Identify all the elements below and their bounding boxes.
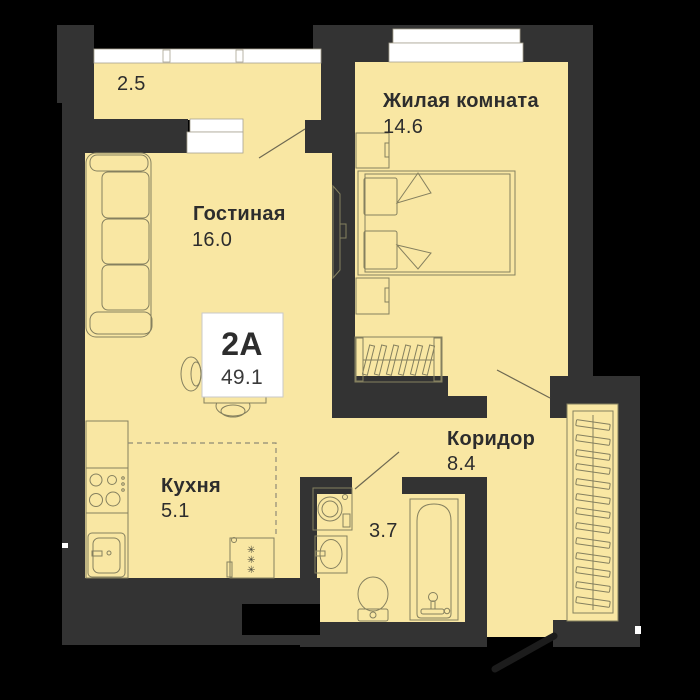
wall-bottom-notch bbox=[242, 604, 320, 635]
living-area-label: 16.0 bbox=[192, 229, 232, 251]
bedroom-name-label: Жилая комната bbox=[382, 90, 540, 112]
living-name-label: Гостиная bbox=[193, 203, 286, 225]
floor-plan-svg: ✳ ✳ ✳ 2А 49.1 bbox=[0, 0, 700, 700]
unit-area-label: 49.1 bbox=[221, 366, 263, 389]
bedroom-window-inner bbox=[389, 43, 523, 62]
entrance-doorway-floor bbox=[487, 622, 553, 637]
balcony-window-divider bbox=[236, 50, 243, 62]
wall-bathroom-top-left bbox=[300, 477, 352, 494]
wall-bathroom-top-right bbox=[402, 477, 465, 494]
balcony-door-window-top bbox=[190, 119, 243, 132]
bedroom-door-area-floor bbox=[448, 376, 550, 397]
bathroom-area-label: 3.7 bbox=[369, 520, 398, 542]
wall-living-bedroom bbox=[332, 120, 355, 418]
bedroom-window-outer bbox=[393, 29, 520, 43]
balcony-window-band bbox=[94, 49, 321, 63]
wall-right bbox=[618, 376, 640, 647]
wall-bedroom-right bbox=[568, 25, 593, 380]
kitchen-area-label: 5.1 bbox=[161, 500, 190, 522]
wall-bathroom-bottom bbox=[300, 622, 487, 647]
balcony-area-label: 2.5 bbox=[117, 73, 146, 95]
wall-bathroom-left bbox=[300, 477, 317, 622]
wall-joint-mark-left bbox=[62, 543, 68, 548]
wall-bedroom-door-stub bbox=[550, 376, 568, 418]
wall-under-balcony bbox=[62, 119, 188, 153]
wall-bedroom-bottom-thin bbox=[448, 396, 487, 418]
wall-bathroom-right bbox=[465, 477, 487, 647]
floor-plan: ✳ ✳ ✳ 2А 49.1 bbox=[0, 0, 700, 700]
unit-card: 2А 49.1 bbox=[202, 313, 283, 397]
fridge-snowflake-icon: ✳ bbox=[247, 565, 256, 576]
wall-joint-mark-right bbox=[635, 626, 641, 634]
balcony-door-window bbox=[187, 132, 243, 153]
balcony-window-divider bbox=[163, 50, 170, 62]
unit-type-label: 2А bbox=[221, 326, 263, 362]
kitchen-name-label: Кухня bbox=[161, 475, 221, 497]
corridor-name-label: Коридор bbox=[447, 428, 535, 450]
corridor-area-label: 8.4 bbox=[447, 453, 476, 475]
wall-closet-bottom bbox=[553, 620, 640, 647]
bedroom-area-label: 14.6 bbox=[383, 116, 423, 138]
hall-closet bbox=[567, 404, 618, 621]
